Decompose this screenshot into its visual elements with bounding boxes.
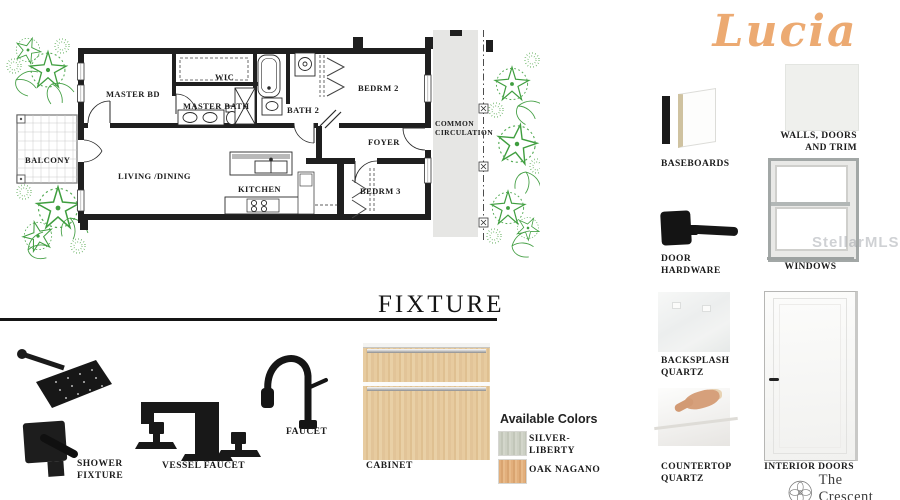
backsplash-quartz-label: BACKSPLASH QUARTZ [661,355,729,379]
hand-finger [673,397,694,413]
cabinet-door-handle [367,387,486,391]
brand-logo: The Crescent at Reunion [788,472,900,500]
window-top-sash [775,165,848,205]
door-hardware-image [658,210,740,250]
countertop-edge [654,417,738,430]
room-label-wic: WIC [215,72,234,82]
baseboards-image [656,86,720,148]
interior-doors-image [764,291,858,461]
balcony-deck [17,115,77,183]
countertop-quartz-image [658,388,730,446]
door-handle-lever [694,225,738,236]
crescent-medallion-icon [788,480,813,500]
room-label-balcony: BALCONY [25,155,70,165]
backsplash-outlet [672,302,681,309]
floor-plan: MASTER BD WIC MASTER BATH BATH 2 BEDRM 2… [0,22,540,262]
room-label-bath-2: BATH 2 [287,105,319,115]
interior-door-handle [769,378,779,381]
cabinet-label: CABINET [366,460,413,472]
cabinet-image [363,343,490,460]
kitchen-faucet-image [246,330,332,434]
color-label-oak-nagano: OAK NAGANO [529,464,600,476]
backsplash-outlet [702,305,711,312]
design-spec-sheet: MASTER BD WIC MASTER BATH BATH 2 BEDRM 2… [0,0,900,500]
baseboards-label: BASEBOARDS [661,158,729,170]
room-label-master-bath: MASTER BATH [183,101,249,111]
fixture-section-heading: FIXTURE [378,291,505,319]
faucet-label: FAUCET [286,426,327,438]
cabinet-drawer-handle [367,349,486,353]
cabinet-panel-gap [363,382,490,386]
color-label-silver-liberty: SILVER- LIBERTY [529,433,575,457]
windows-label: WINDOWS [768,261,853,273]
brand-name: The Crescent [819,472,900,500]
room-label-bedrm-3: BEDRM 3 [360,186,401,196]
window-sill [767,257,854,260]
backsplash-quartz-image [658,292,730,352]
color-swatch-oak-nagano [498,459,527,484]
room-label-master-bd: MASTER BD [106,89,160,99]
room-label-living-dining: LIVING /DINING [118,171,191,181]
baseboard-black-sample [662,96,670,144]
shower-fixture-label: SHOWER FIXTURE [77,458,123,482]
vessel-faucet-label: VESSEL FAUCET [162,460,245,472]
unit-title: Lucia [700,6,870,57]
mls-watermark: StellarMLS [812,234,900,251]
window-meeting-rail [771,202,850,206]
color-swatch-silver-liberty [498,431,527,456]
room-label-common-2: CIRCULATION [435,128,493,137]
room-label-foyer: FOYER [368,137,400,147]
door-panel-groove-inner [779,304,841,448]
room-label-kitchen: KITCHEN [238,184,281,194]
cabinet-countertop-edge [363,343,490,348]
door-hardware-label: DOOR HARDWARE [661,253,721,277]
baseboard-white-sample [678,88,716,148]
room-label-bedrm-2: BEDRM 2 [358,83,399,93]
fixture-heading-underline [0,318,497,321]
room-label-common-1: COMMON [435,119,474,128]
walls-doors-trim-swatch [785,64,859,131]
countertop-quartz-label: COUNTERTOP QUARTZ [661,461,732,485]
available-colors-heading: Available Colors [500,412,598,426]
walls-doors-trim-label: WALLS, DOORS AND TRIM [777,130,857,154]
